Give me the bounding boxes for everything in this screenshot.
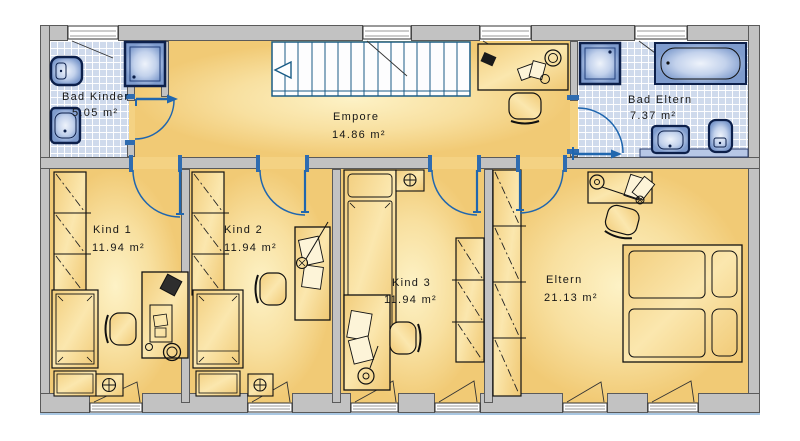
room-label-bad-kinder: Bad Kinder <box>62 91 129 103</box>
wall <box>477 157 520 169</box>
wall <box>161 41 169 97</box>
room-label-kind-2: Kind 2 <box>224 224 263 236</box>
window-sill-line <box>40 413 760 415</box>
room-area-bad-kinder: 5.05 m² <box>72 107 118 119</box>
room-area-kind-1: 11.94 m² <box>92 242 145 254</box>
wall <box>607 393 648 413</box>
room-floor-kind-1 <box>50 169 181 403</box>
room-area-empore: 14.86 m² <box>332 129 386 141</box>
wall <box>40 157 133 169</box>
wall <box>305 157 432 169</box>
wall <box>181 169 190 403</box>
room-area-kind-3: 11.94 m² <box>384 294 437 306</box>
wall <box>142 393 248 413</box>
wall <box>180 157 260 169</box>
room-label-empore: Empore <box>333 111 379 123</box>
room-floor-eltern <box>493 169 748 403</box>
wall <box>748 25 760 413</box>
wall <box>531 25 635 41</box>
room-label-kind-1: Kind 1 <box>93 224 132 236</box>
floor-plan: Bad Kinder 5.05 m² Empore 14.86 m² Bad E… <box>0 0 800 441</box>
wall <box>332 169 341 403</box>
wall <box>484 169 493 403</box>
room-label-bad-eltern: Bad Eltern <box>628 94 692 106</box>
wall <box>127 141 135 157</box>
room-label-eltern: Eltern <box>546 274 583 286</box>
room-area-eltern: 21.13 m² <box>544 292 598 304</box>
room-area-bad-eltern: 7.37 m² <box>630 110 676 122</box>
room-label-kind-3: Kind 3 <box>392 277 431 289</box>
wall <box>698 393 760 413</box>
room-area-kind-2: 11.94 m² <box>224 242 277 254</box>
wall <box>570 149 578 157</box>
room-floor-kind-2 <box>190 169 332 403</box>
wall <box>292 393 351 413</box>
wall <box>570 41 578 101</box>
wall <box>563 157 760 169</box>
wall <box>398 393 435 413</box>
wall <box>411 25 480 41</box>
wall <box>118 25 363 41</box>
wall <box>40 25 50 413</box>
wall <box>40 393 90 413</box>
